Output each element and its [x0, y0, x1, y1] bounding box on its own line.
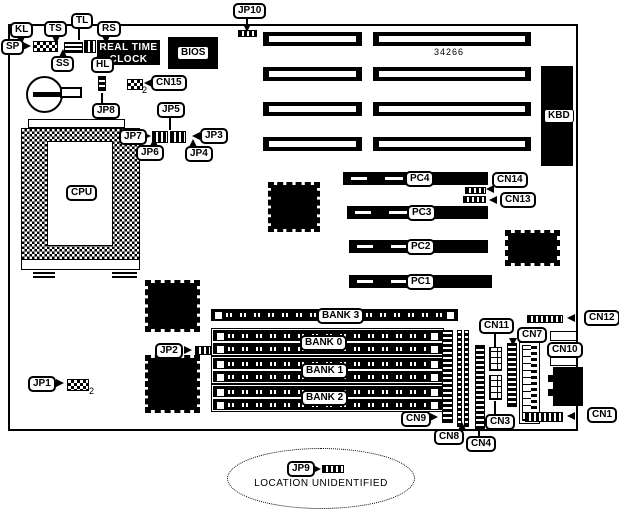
pc1-label: PC1: [406, 274, 435, 290]
pointer-cn12: [567, 314, 575, 322]
callout-sp: SP: [1, 39, 24, 55]
isa-slot: [263, 102, 362, 116]
kbd-text: KBD: [548, 110, 570, 121]
isa-slot: [373, 67, 531, 81]
callout-cn9: CN9: [401, 411, 431, 427]
pc4-label: PC4: [405, 171, 434, 187]
callout-jp10: JP10: [233, 3, 266, 19]
callout-jp5: JP5: [157, 102, 185, 118]
isa-slot: [263, 32, 362, 46]
pointer-cn11: [494, 333, 496, 347]
callout-cn9-label: CN9: [406, 413, 426, 424]
qfp-chip: [505, 230, 560, 266]
pointer-cn7: [509, 338, 517, 346]
callout-cn13: CN13: [500, 192, 536, 208]
external-port: [553, 367, 583, 406]
jp1-pin2: 2: [89, 386, 94, 396]
pointer-jp5: [169, 117, 171, 130]
bios-text: BIOS: [181, 47, 205, 58]
isa-slot: [263, 67, 362, 81]
connector-cn12-block: [527, 315, 563, 323]
callout-jp7: JP7: [119, 129, 147, 145]
callout-cn7: CN7: [517, 327, 547, 343]
pc4-text: PC4: [410, 173, 429, 184]
callout-cn14-label: CN14: [497, 174, 523, 185]
connector-cn15-block: [127, 79, 143, 90]
callout-rs-label: RS: [102, 23, 116, 34]
callout-cn3: CN3: [485, 414, 515, 430]
connector-cn8-block: [464, 330, 469, 427]
connector-cn3-block: [489, 375, 502, 400]
jumper-jp1-block: [67, 379, 89, 391]
pointer-jp2: [184, 346, 192, 354]
jumper-jp9-block: [322, 465, 344, 473]
callout-jp6-label: JP6: [141, 147, 159, 158]
connector-cn13-block: [463, 196, 486, 203]
callout-cn8-label: CN8: [439, 431, 459, 442]
callout-tl-label: TL: [76, 15, 88, 26]
bios-chip-label: BIOS: [177, 46, 209, 60]
connector-cn4-block: [475, 345, 485, 430]
pointer-ts: [52, 36, 60, 44]
callout-cn14: CN14: [492, 172, 528, 188]
callout-tl: TL: [71, 13, 93, 29]
cpu-top-bar: [28, 119, 125, 128]
callout-rs: RS: [97, 21, 121, 37]
cn15-pin2: 2: [142, 85, 147, 95]
callout-kl-label: KL: [15, 24, 28, 35]
isa-slot: [373, 102, 531, 116]
pointer-jp10: [243, 24, 251, 32]
connector-cn14-block: [465, 187, 486, 194]
callout-cn15: CN15: [151, 75, 187, 91]
callout-ss-label: SS: [56, 58, 69, 69]
battery-tab: [60, 87, 82, 98]
bank2-text: BANK 2: [306, 392, 343, 403]
pc3-text: PC3: [412, 207, 431, 218]
location-note: LOCATION UNIDENTIFIED: [237, 478, 405, 489]
pc3-label: PC3: [407, 205, 436, 221]
bank3-label: BANK 3: [317, 308, 364, 324]
connector-cn9-block: [442, 330, 453, 423]
pointer-tl: [78, 28, 80, 40]
cn10-connector-upper: [550, 331, 577, 341]
cpu-label: CPU: [66, 185, 97, 201]
qfp-chip: [145, 280, 200, 332]
cpu-foot-left: [33, 271, 55, 278]
callout-cn4: CN4: [466, 436, 496, 452]
callout-cn13-label: CN13: [505, 194, 531, 205]
callout-ts: TS: [44, 21, 67, 37]
callout-cn4-label: CN4: [471, 438, 491, 449]
isa-slot: [373, 137, 531, 151]
callout-hl-label: HL: [96, 59, 109, 70]
callout-kl: KL: [10, 22, 33, 38]
motherboard-diagram: KL TS TL RS SP SS HL REAL TIME CLOCK JP8…: [0, 0, 619, 510]
callout-cn11: CN11: [479, 318, 514, 334]
pointer-cn3: [494, 401, 496, 414]
callout-jp4-label: JP4: [190, 148, 208, 159]
qfp-chip: [145, 355, 200, 413]
callout-cn15-label: CN15: [156, 77, 182, 88]
callout-jp7-label: JP7: [124, 131, 142, 142]
connector-cn11-block: [489, 347, 502, 371]
bank1-label: BANK 1: [301, 363, 348, 379]
callout-jp2: JP2: [155, 343, 183, 359]
callout-jp9: JP9: [287, 461, 315, 477]
callout-jp3-label: JP3: [205, 130, 223, 141]
callout-jp2-label: JP2: [160, 345, 178, 356]
callout-cn11-label: CN11: [484, 320, 509, 331]
callout-cn3-label: CN3: [490, 416, 510, 427]
callout-cn10-label: CN10: [552, 344, 578, 355]
callout-jp3: JP3: [200, 128, 228, 144]
callout-jp4: JP4: [185, 146, 213, 162]
isa-slot: [373, 32, 531, 46]
callout-ss: SS: [51, 56, 74, 72]
board-part-number: 34266: [434, 47, 464, 57]
callout-jp9-label: JP9: [292, 463, 310, 474]
pointer-cn9: [430, 413, 438, 421]
callout-cn1: CN1: [587, 407, 617, 423]
callout-hl: HL: [91, 57, 114, 73]
pointer-jp1: [56, 379, 64, 387]
external-port-notch: [548, 389, 553, 396]
isa-slot: [263, 137, 362, 151]
jumper-jp2-block: [195, 346, 211, 355]
pc2-text: PC2: [411, 241, 430, 252]
callout-cn7-label: CN7: [522, 329, 542, 340]
bank3-text: BANK 3: [322, 310, 359, 321]
qfp-chip: [268, 182, 320, 232]
pointer-cn13: [489, 196, 497, 204]
pointer-sp: [23, 42, 31, 50]
cpu-text: CPU: [71, 187, 92, 198]
pc1-text: PC1: [411, 276, 430, 287]
callout-cn12: CN12: [584, 310, 619, 326]
callout-sp-label: SP: [6, 41, 19, 52]
callout-jp10-label: JP10: [238, 5, 261, 16]
callout-cn10: CN10: [547, 342, 583, 358]
connector-cn1-block: [525, 412, 563, 422]
callout-jp6: JP6: [136, 145, 164, 161]
pc2-label: PC2: [406, 239, 435, 255]
pointer-cn1: [567, 412, 575, 420]
connector-cn7-block: [507, 343, 517, 407]
cn10-connector-lower: [550, 357, 577, 366]
bank1-text: BANK 1: [306, 365, 343, 376]
external-port-notch: [548, 375, 553, 382]
bank0-label: BANK 0: [300, 335, 347, 351]
jumper-jp8-block: [98, 76, 106, 91]
callout-cn8: CN8: [434, 429, 464, 445]
callout-jp1-label: JP1: [33, 378, 51, 389]
battery-strap: [33, 92, 63, 97]
callout-jp8: JP8: [92, 103, 120, 119]
jumper-block-rs: [84, 40, 96, 53]
callout-cn1-label: CN1: [592, 409, 612, 420]
callout-jp5-label: JP5: [162, 104, 180, 115]
bank2-label: BANK 2: [301, 390, 348, 406]
kbd-connector-label: KBD: [544, 109, 574, 123]
pointer-rs: [102, 36, 110, 44]
bank0-text: BANK 0: [305, 337, 342, 348]
cpu-bottom-bar: [21, 259, 140, 270]
connector-cn8-block: [457, 330, 462, 427]
callout-cn12-label: CN12: [589, 312, 615, 323]
cpu-foot-right: [112, 271, 137, 278]
callout-jp1: JP1: [28, 376, 56, 392]
jumper-cluster-right: [170, 131, 186, 143]
callout-ts-label: TS: [49, 23, 62, 34]
callout-jp8-label: JP8: [97, 105, 115, 116]
